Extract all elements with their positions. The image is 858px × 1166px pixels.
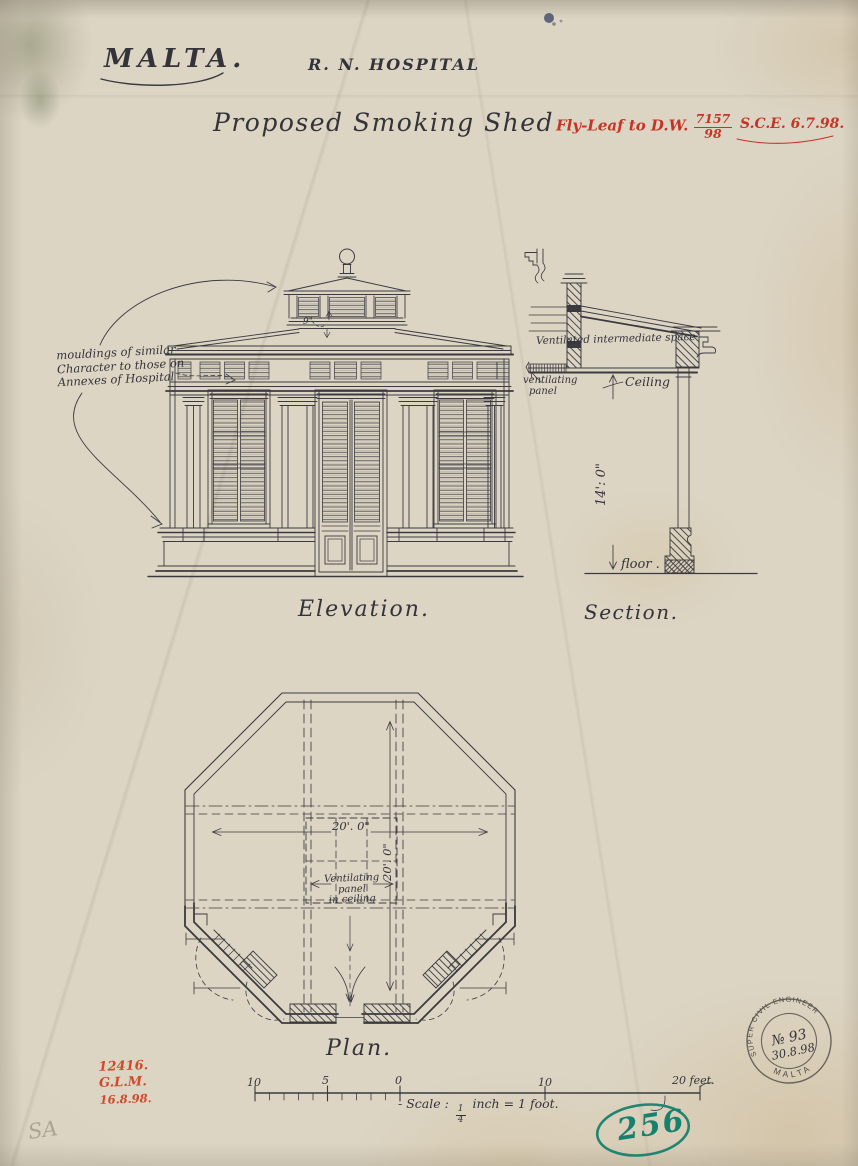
- plan-label: Plan.: [326, 1036, 392, 1061]
- plan-vent-note: Ventilating panel in ceiling: [311, 873, 392, 907]
- fly-leaf-denominator: 98: [704, 128, 721, 141]
- ventilating-panel-line2: panel: [523, 386, 577, 397]
- sce-note: S.C.E. 6.7.98.: [740, 116, 844, 132]
- ink-blot: [544, 13, 562, 26]
- ventilating-panel-note: ventilating panel: [523, 375, 577, 397]
- title-underline-swash: [101, 73, 223, 85]
- scale-tick-10-left: 10: [247, 1076, 261, 1089]
- red-registry-line2: G.L.M.: [99, 1074, 152, 1092]
- drawing-sheet: SUPER CIVIL ENGINEER MALTA № 93 30.8.98 …: [0, 0, 858, 1166]
- fly-leaf-label: Fly-Leaf to D.W.: [556, 117, 688, 135]
- scale-caption-prefix: - Scale :: [398, 1096, 449, 1111]
- scale-caption: - Scale : 1 4 inch = 1 foot.: [398, 1096, 559, 1125]
- elevation-drawing: [74, 249, 523, 577]
- sheet-institution-title: R. N. HOSPITAL: [308, 55, 480, 74]
- floor-note: floor .: [621, 557, 660, 572]
- sce-underline-swash: [737, 136, 833, 143]
- fly-leaf-fraction: 7157 98: [694, 113, 733, 140]
- section-label: Section.: [584, 600, 678, 624]
- mouldings-note: mouldings of similar Character to those …: [56, 343, 185, 390]
- round-stamp: SUPER CIVIL ENGINEER MALTA № 93 30.8.98: [737, 987, 839, 1091]
- section-height-dimension: 14': 0": [594, 463, 609, 506]
- scale-fraction-den: 4: [458, 1116, 464, 1125]
- fly-leaf-reference: Fly-Leaf to D.W. 7157 98: [556, 113, 732, 140]
- scale-caption-suffix: inch = 1 foot.: [473, 1096, 559, 1111]
- roof-dimension: 9": [303, 317, 313, 327]
- pencil-signature: SA: [26, 1116, 59, 1144]
- red-registry-line3: 16.8.98.: [99, 1090, 152, 1108]
- scale-tick-20: 20 feet.: [672, 1074, 715, 1087]
- sheet-location-title: MALTA.: [104, 44, 246, 74]
- sheet-main-title: Proposed Smoking Shed: [213, 108, 554, 137]
- elevation-label: Elevation.: [298, 597, 430, 622]
- scale-tick-10-right: 10: [538, 1076, 552, 1089]
- red-registry-line1: 12416.: [98, 1058, 151, 1076]
- scale-tick-5: 5: [322, 1074, 329, 1087]
- scale-tick-0: 0: [395, 1074, 402, 1087]
- ventilating-panel-line1: ventilating: [523, 375, 577, 386]
- ceiling-note: Ceiling: [625, 374, 670, 389]
- red-registry-note: 12416. G.L.M. 16.8.98.: [98, 1058, 152, 1108]
- drawing-layer: SUPER CIVIL ENGINEER MALTA № 93 30.8.98: [0, 0, 858, 1166]
- section-drawing: [525, 249, 757, 574]
- plan-drawing: [185, 693, 515, 1023]
- scale-fraction: 1 4: [456, 1105, 466, 1125]
- plan-width-dimension: 20'. 0": [332, 819, 370, 833]
